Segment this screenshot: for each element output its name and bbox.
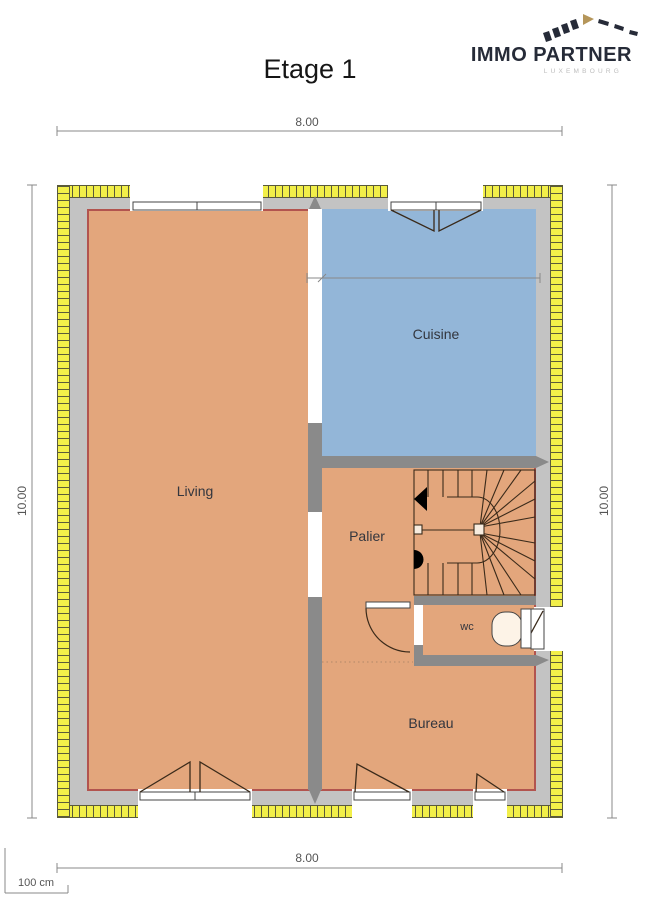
wc-door-opening [414,605,423,645]
logo-subtitle: LUXEMBOURG [544,68,622,75]
company-logo: IMMO PARTNER LUXEMBOURG [480,6,642,78]
dimension-top: 8.00 [257,115,357,129]
room-label-wc: wc [442,621,492,633]
door-opening-living-palier [308,512,322,597]
room-label-living: Living [145,483,245,499]
page-title: Etage 1 [210,54,410,85]
dimension-right: 10.00 [597,445,611,557]
window-opening-bureau-2 [473,789,507,818]
roof-logo-icon [480,6,642,44]
scale-bar-label: 100 cm [18,877,54,889]
dimension-left: 10.00 [15,445,29,557]
logo-gold-accent [583,14,594,25]
interior-wall-segment-1 [308,423,322,512]
room-label-bureau: Bureau [381,715,481,731]
wc-bottom-wall [414,655,536,666]
door-opening-living-bottom [138,789,252,818]
wc-wall-stub [414,645,423,655]
window-opening-living-top [130,185,263,211]
wall-opening-living-cuisine [308,209,322,423]
floor-plan-page: Etage 1 IMMO PARTNER LUXEMBOURG 8.00 8.0… [0,0,645,900]
window-opening-bureau-1 [352,789,412,818]
wc-top-wall [414,596,536,605]
window-opening-cuisine-top [388,185,483,211]
room-label-cuisine: Cuisine [386,326,486,342]
exterior-brick-right [550,185,563,818]
exterior-brick-left [57,185,70,818]
interior-wall-segment-2 [308,597,322,790]
cuisine-bottom-wall [322,456,536,468]
room-label-palier: Palier [317,528,417,544]
logo-text: IMMO PARTNER [471,44,632,67]
window-opening-wc [534,607,563,651]
dimension-bottom: 8.00 [257,851,357,865]
